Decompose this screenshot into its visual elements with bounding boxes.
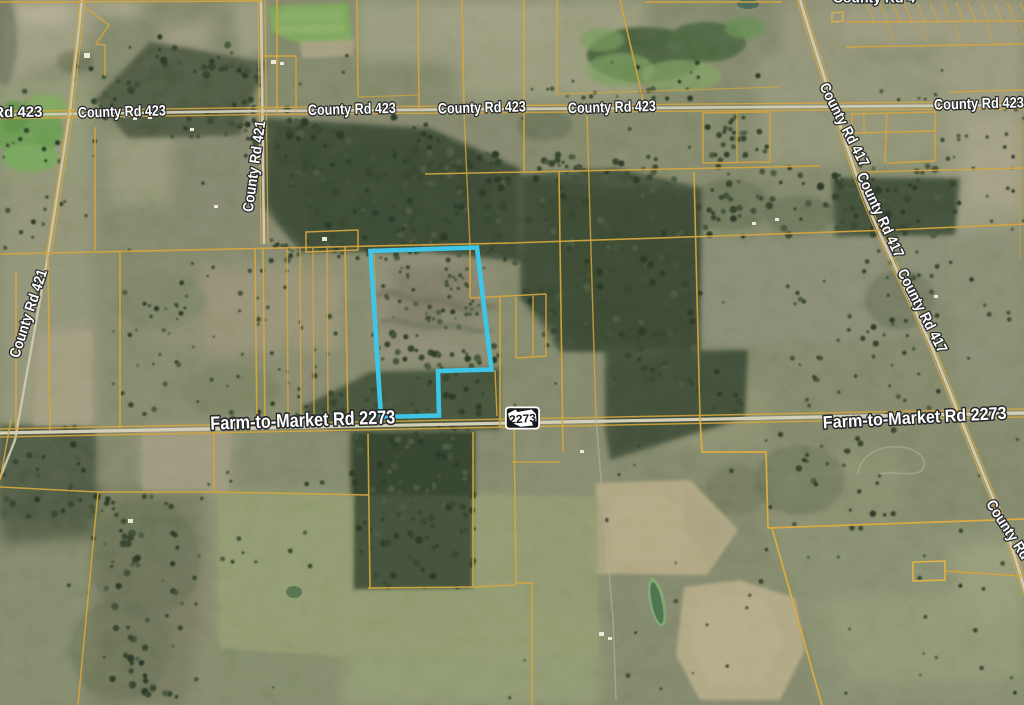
svg-text:County Rd 423: County Rd 423 [568, 98, 656, 117]
svg-text:County Rd 423: County Rd 423 [308, 100, 396, 119]
svg-text:Rd 423: Rd 423 [0, 104, 43, 122]
svg-text:2273: 2273 [509, 413, 537, 427]
svg-text:County Rd 423: County Rd 423 [438, 98, 526, 117]
svg-text:County Rd 423: County Rd 423 [78, 102, 166, 121]
svg-text:County Rd 423: County Rd 423 [934, 94, 1024, 113]
svg-text:County Rd 4: County Rd 4 [833, 0, 916, 6]
